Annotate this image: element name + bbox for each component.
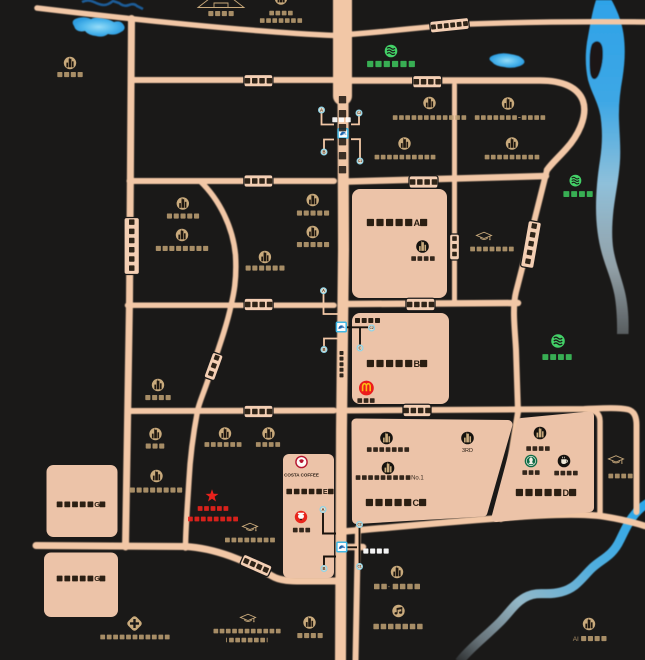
svg-text:G: G [94, 500, 100, 509]
svg-text:A: A [322, 288, 325, 293]
svg-text:C1: C1 [357, 565, 361, 569]
svg-text:C: C [413, 498, 420, 508]
svg-text:C1: C1 [358, 159, 362, 163]
svg-text:C2: C2 [357, 523, 361, 527]
svg-text:A: A [320, 108, 323, 113]
svg-text:3RD: 3RD [462, 448, 473, 454]
svg-text:C2: C2 [357, 111, 361, 115]
svg-text:C: C [358, 346, 361, 351]
svg-text:A: A [414, 218, 421, 228]
svg-text:B: B [322, 347, 325, 352]
svg-text:C2: C2 [370, 326, 374, 330]
svg-text:A: A [321, 507, 324, 512]
svg-text:G: G [94, 574, 100, 583]
svg-text:B: B [414, 359, 421, 369]
svg-text:COSTA COFFEE: COSTA COFFEE [284, 472, 319, 477]
svg-text:E: E [323, 487, 328, 496]
svg-text:No.1: No.1 [411, 476, 424, 482]
svg-text:AI: AI [573, 636, 579, 643]
svg-text:B: B [322, 566, 325, 571]
svg-text:B: B [322, 150, 325, 155]
svg-text:D: D [563, 488, 570, 498]
